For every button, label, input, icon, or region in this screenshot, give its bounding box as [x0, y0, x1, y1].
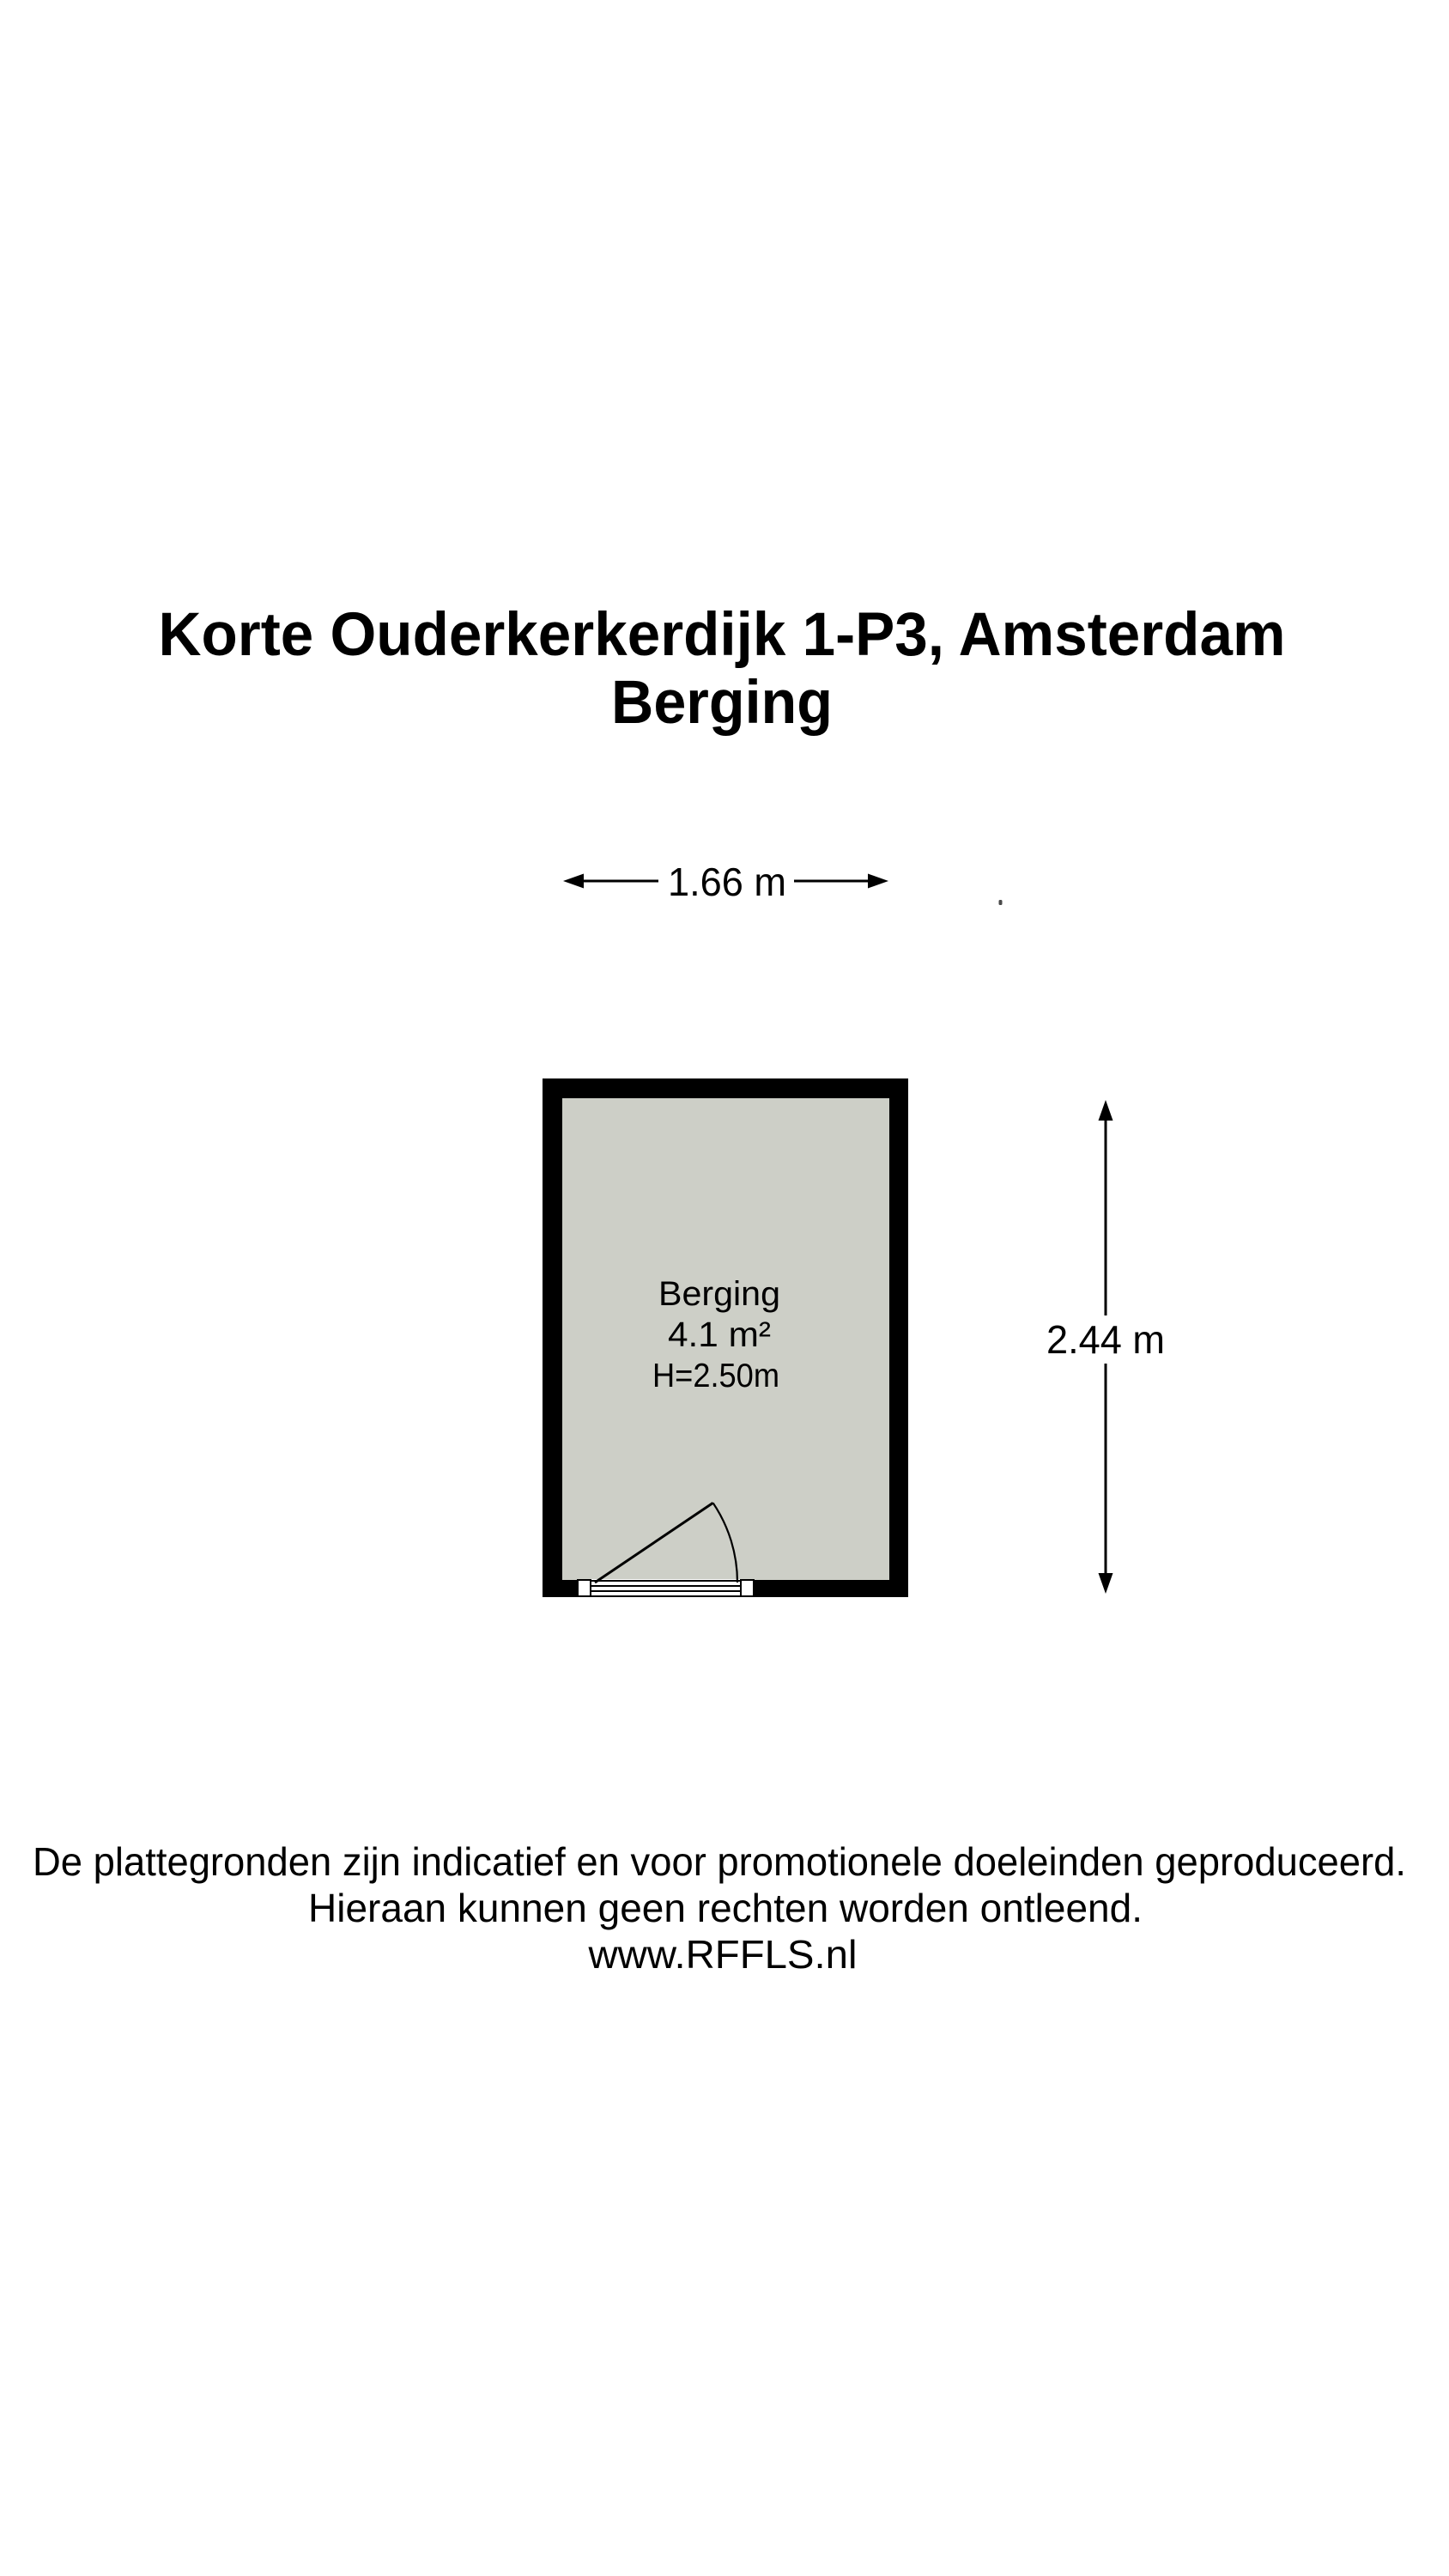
svg-text:Berging: Berging — [611, 669, 833, 737]
svg-text:Berging: Berging — [658, 1275, 780, 1313]
svg-text:De plattegronden zijn indicati: De plattegronden zijn indicatief en voor… — [33, 1839, 1406, 1884]
svg-text:1.66 m: 1.66 m — [668, 860, 786, 904]
svg-text:2.44 m: 2.44 m — [1046, 1317, 1165, 1362]
svg-text:Korte Ouderkerkerdijk 1-P3, Am: Korte Ouderkerkerdijk 1-P3, Amsterdam — [159, 601, 1286, 669]
svg-text:4.1 m²: 4.1 m² — [668, 1315, 771, 1354]
svg-text:H=2.50m: H=2.50m — [652, 1358, 779, 1394]
svg-text:Hieraan kunnen geen rechten wo: Hieraan kunnen geen rechten worden ontle… — [308, 1886, 1143, 1930]
svg-text:www.RFFLS.nl: www.RFFLS.nl — [587, 1932, 857, 1977]
